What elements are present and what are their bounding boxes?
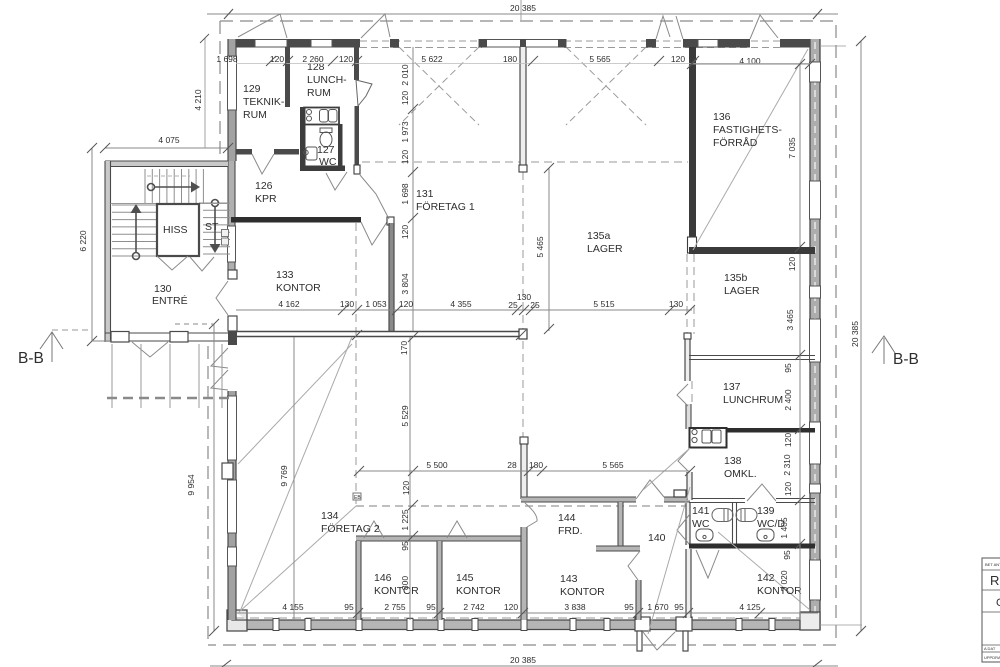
svg-text:130: 130 [669, 299, 683, 309]
svg-text:5 465: 5 465 [535, 236, 545, 258]
svg-text:145: 145 [456, 572, 474, 584]
svg-text:143: 143 [560, 573, 578, 585]
svg-text:4 155: 4 155 [282, 602, 304, 612]
svg-text:RUM: RUM [307, 87, 331, 99]
svg-text:FRD.: FRD. [558, 525, 583, 537]
svg-text:25: 25 [530, 300, 540, 310]
svg-text:95: 95 [674, 602, 684, 612]
svg-text:EB: EB [354, 495, 361, 501]
svg-text:KONTOR: KONTOR [374, 585, 419, 597]
svg-text:95: 95 [624, 602, 634, 612]
svg-text:120: 120 [270, 54, 284, 64]
svg-text:134: 134 [321, 510, 339, 522]
svg-text:180: 180 [503, 54, 517, 64]
svg-text:B-B: B-B [18, 350, 44, 367]
svg-text:5 515: 5 515 [593, 299, 615, 309]
svg-text:141: 141 [692, 505, 710, 517]
svg-text:9 954: 9 954 [186, 474, 196, 496]
svg-text:1 225: 1 225 [400, 509, 410, 531]
svg-text:120: 120 [787, 257, 797, 271]
svg-text:4 075: 4 075 [158, 135, 180, 145]
svg-text:2 400: 2 400 [783, 389, 793, 411]
svg-text:138: 138 [724, 455, 742, 467]
svg-text:1 053: 1 053 [365, 299, 387, 309]
svg-text:130: 130 [517, 292, 531, 302]
svg-text:1 973: 1 973 [400, 121, 410, 143]
svg-text:144: 144 [558, 512, 576, 524]
svg-text:120: 120 [400, 150, 410, 164]
svg-text:136: 136 [713, 111, 731, 123]
svg-text:UPPDRAG: UPPDRAG [984, 655, 1000, 660]
svg-text:95: 95 [400, 541, 410, 551]
svg-text:5 565: 5 565 [589, 54, 611, 64]
svg-text:1 670: 1 670 [647, 602, 669, 612]
svg-text:LAGER: LAGER [587, 243, 623, 255]
svg-text:WC: WC [319, 156, 337, 168]
svg-text:3 838: 3 838 [564, 602, 586, 612]
svg-text:28: 28 [507, 460, 517, 470]
svg-text:120: 120 [339, 54, 353, 64]
svg-text:7 035: 7 035 [787, 137, 797, 159]
svg-text:OMKL.: OMKL. [724, 468, 757, 480]
svg-text:FASTIGHETS-: FASTIGHETS- [713, 124, 782, 136]
svg-text:170: 170 [399, 341, 409, 355]
svg-text:142: 142 [757, 572, 775, 584]
svg-text:20 385: 20 385 [510, 3, 536, 13]
svg-text:4 162: 4 162 [278, 299, 300, 309]
svg-text:3 465: 3 465 [785, 309, 795, 331]
svg-text:135b: 135b [724, 272, 748, 284]
svg-text:130: 130 [154, 283, 172, 295]
svg-text:LUNCH-: LUNCH- [307, 74, 347, 86]
svg-text:130: 130 [340, 299, 354, 309]
svg-text:127: 127 [317, 144, 335, 156]
svg-text:95: 95 [426, 602, 436, 612]
svg-text:2 755: 2 755 [384, 602, 406, 612]
svg-text:RUM: RUM [243, 109, 267, 121]
svg-text:6 220: 6 220 [78, 230, 88, 252]
svg-text:129: 129 [243, 83, 261, 95]
svg-text:120: 120 [399, 299, 413, 309]
svg-text:120: 120 [400, 225, 410, 239]
svg-text:B-B: B-B [893, 351, 919, 368]
svg-text:95: 95 [782, 550, 792, 560]
svg-text:2 260: 2 260 [302, 54, 324, 64]
svg-text:R: R [990, 573, 999, 588]
svg-text:2 310: 2 310 [782, 454, 792, 476]
svg-text:120: 120 [400, 91, 410, 105]
svg-text:TEKNIK-: TEKNIK- [243, 96, 285, 108]
svg-text:1 698: 1 698 [400, 183, 410, 205]
svg-text:133: 133 [276, 269, 294, 281]
svg-text:5 500: 5 500 [426, 460, 448, 470]
svg-text:HISS: HISS [163, 224, 188, 236]
svg-text:BET ANT: BET ANT [985, 562, 1000, 567]
svg-text:120: 120 [504, 602, 518, 612]
svg-text:2 020: 2 020 [779, 570, 789, 592]
svg-text:KONTOR: KONTOR [456, 585, 501, 597]
svg-text:1 698: 1 698 [216, 54, 238, 64]
svg-text:120: 120 [783, 482, 793, 496]
svg-text:20 385: 20 385 [510, 655, 536, 665]
svg-text:KPR: KPR [255, 193, 277, 205]
svg-text:800: 800 [400, 576, 410, 590]
svg-text:2 010: 2 010 [400, 64, 410, 86]
svg-text:KONTOR: KONTOR [276, 282, 321, 294]
svg-text:KONTOR: KONTOR [560, 586, 605, 598]
svg-text:5 529: 5 529 [400, 405, 410, 427]
svg-text:FÖRETAG 2: FÖRETAG 2 [321, 523, 380, 535]
svg-text:3 804: 3 804 [400, 273, 410, 295]
svg-text:120: 120 [783, 433, 793, 447]
svg-text:120: 120 [671, 54, 685, 64]
svg-text:WC: WC [692, 518, 710, 530]
svg-text:146: 146 [374, 572, 392, 584]
svg-text:5 565: 5 565 [602, 460, 624, 470]
svg-text:FÖRETAG 1: FÖRETAG 1 [416, 201, 475, 213]
svg-text:A DAT: A DAT [984, 646, 996, 651]
svg-text:G: G [996, 597, 1000, 609]
svg-text:4 125: 4 125 [739, 602, 761, 612]
svg-text:135a: 135a [587, 230, 611, 242]
svg-text:20 385: 20 385 [850, 321, 860, 347]
svg-text:9 769: 9 769 [279, 465, 289, 487]
svg-text:139: 139 [757, 505, 775, 517]
svg-text:2 742: 2 742 [463, 602, 485, 612]
svg-text:ENTRÉ: ENTRÉ [152, 294, 188, 307]
svg-text:5 622: 5 622 [421, 54, 443, 64]
svg-text:137: 137 [723, 381, 741, 393]
svg-text:131: 131 [416, 188, 434, 200]
svg-text:4 355: 4 355 [450, 299, 472, 309]
svg-text:140: 140 [648, 532, 666, 544]
svg-text:1 405: 1 405 [779, 517, 789, 539]
svg-text:LAGER: LAGER [724, 285, 760, 297]
svg-text:95: 95 [344, 602, 354, 612]
svg-text:95: 95 [783, 363, 793, 373]
svg-text:ST: ST [205, 221, 219, 233]
svg-text:126: 126 [255, 180, 273, 192]
svg-text:LUNCHRUM: LUNCHRUM [723, 394, 783, 406]
svg-text:4 210: 4 210 [193, 89, 203, 111]
svg-text:FÖRRÅD: FÖRRÅD [713, 136, 758, 149]
